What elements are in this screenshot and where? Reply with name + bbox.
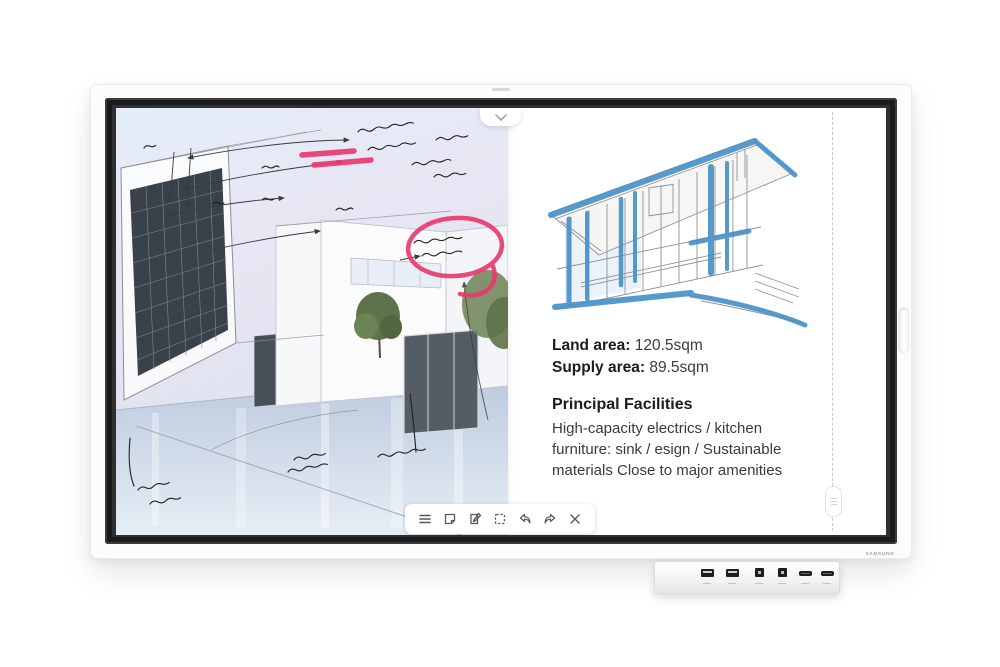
page-divider-dashed bbox=[832, 112, 833, 531]
drawing-toolbar bbox=[405, 504, 595, 534]
hdmi-port bbox=[821, 571, 834, 576]
side-pen-slot bbox=[898, 307, 909, 353]
usb-a-port bbox=[701, 569, 714, 577]
close-button[interactable] bbox=[567, 511, 584, 528]
select-button[interactable] bbox=[491, 511, 508, 528]
architecture-sketch-canvas[interactable] bbox=[116, 108, 508, 535]
supply-area-label: Supply area: bbox=[552, 359, 645, 376]
note-button[interactable] bbox=[441, 511, 458, 528]
supply-area-line: Supply area: 89.5sqm bbox=[552, 357, 806, 379]
facilities-title: Principal Facilities bbox=[552, 394, 806, 416]
paste-import-icon bbox=[467, 511, 483, 527]
menu-button[interactable] bbox=[416, 511, 433, 528]
display-bezel: Land area: 120.5sqm Supply area: 89.5sqm… bbox=[105, 98, 897, 544]
connectivity-tray bbox=[654, 561, 840, 594]
menu-icon bbox=[417, 511, 433, 527]
supply-area-value: 89.5sqm bbox=[649, 359, 708, 376]
port-label-mark bbox=[755, 583, 763, 584]
property-info: Land area: 120.5sqm Supply area: 89.5sqm… bbox=[552, 335, 806, 481]
usb-b-port bbox=[778, 568, 787, 577]
usb-a-port bbox=[726, 569, 739, 577]
port-label-mark bbox=[801, 583, 809, 584]
land-area-label: Land area: bbox=[552, 337, 630, 354]
land-area-value: 120.5sqm bbox=[635, 337, 703, 354]
select-icon bbox=[492, 511, 508, 527]
product-shot-background: Land area: 120.5sqm Supply area: 89.5sqm… bbox=[0, 0, 1000, 667]
paste-import-button[interactable] bbox=[466, 511, 483, 528]
note-icon bbox=[442, 511, 458, 527]
page-divider-handle[interactable] bbox=[825, 486, 842, 517]
redo-icon bbox=[542, 511, 558, 527]
undo-icon bbox=[517, 511, 533, 527]
redo-button[interactable] bbox=[542, 511, 559, 528]
port-label-mark bbox=[778, 583, 786, 584]
hdmi-port bbox=[799, 571, 812, 576]
chevron-down-icon bbox=[495, 114, 507, 121]
port-label-mark bbox=[728, 583, 736, 584]
whiteboard-screen: Land area: 120.5sqm Supply area: 89.5sqm… bbox=[116, 108, 886, 535]
close-icon bbox=[567, 511, 583, 527]
annotated-house-drawing[interactable] bbox=[541, 123, 811, 328]
port-label-mark bbox=[823, 583, 831, 584]
samsung-flip-display: Land area: 120.5sqm Supply area: 89.5sqm… bbox=[90, 84, 912, 559]
undo-button[interactable] bbox=[517, 511, 534, 528]
top-sensor-slot bbox=[492, 88, 510, 91]
top-panel-toggle[interactable] bbox=[480, 108, 521, 126]
land-area-line: Land area: 120.5sqm bbox=[552, 335, 806, 357]
usb-b-port bbox=[755, 568, 764, 577]
port-label-mark bbox=[703, 583, 711, 584]
samsung-logo: SAMSUNG bbox=[866, 552, 895, 557]
facilities-body: High-capacity electrics / kitchen furnit… bbox=[552, 418, 806, 481]
